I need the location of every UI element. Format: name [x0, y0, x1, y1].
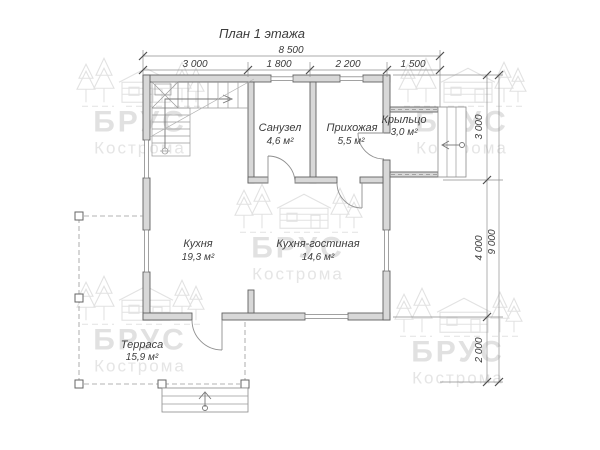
floor-plan-page: БРУС Кострома БРУС Кострома БРУС Костром… — [0, 0, 600, 450]
room-name-bathroom: Санузел — [259, 122, 302, 134]
room-area-kitchen-living: 14,6 м² — [302, 252, 335, 263]
room-name-hallway: Прихожая — [326, 122, 377, 134]
room-name-porch: Крыльцо — [381, 114, 426, 126]
dim-top-seg-3: 2 200 — [334, 59, 360, 70]
dim-right-seg-2: 4 000 — [474, 235, 485, 260]
dim-right-seg-3: 2 000 — [474, 337, 485, 363]
exterior-walls — [143, 75, 390, 320]
porch-steps — [438, 107, 466, 177]
room-area-bathroom: 4,6 м² — [267, 136, 295, 147]
plan-title: План 1 этажа — [219, 26, 305, 41]
room-labels: Санузел 4,6 м² Прихожая 5,5 м² Крыльцо 3… — [121, 114, 427, 363]
bathroom-door-swing — [268, 156, 295, 183]
room-area-terrace: 15,9 м² — [126, 352, 159, 363]
dim-right-total: 9 000 — [487, 229, 498, 254]
dim-top-seg-4: 1 500 — [400, 59, 425, 70]
room-name-kitchen-living: Кухня-гостиная — [276, 238, 359, 250]
dim-top-seg-1: 3 000 — [182, 59, 207, 70]
room-area-porch: 3,0 м² — [391, 127, 419, 138]
room-area-hallway: 5,5 м² — [338, 136, 366, 147]
interior-walls — [248, 82, 383, 313]
terrace-door-swing — [192, 320, 222, 350]
staircase — [150, 79, 254, 156]
terrace — [75, 212, 249, 412]
floor-plan-drawing: План 1 этажа — [0, 0, 600, 450]
living-room-door-swing — [337, 183, 362, 208]
room-name-terrace: Терраса — [121, 339, 163, 351]
dim-top-seg-2: 1 800 — [266, 59, 291, 70]
room-area-kitchen: 19,3 м² — [182, 252, 215, 263]
dim-top-total: 8 500 — [278, 45, 303, 56]
windows — [145, 77, 389, 319]
room-name-kitchen: Кухня — [183, 238, 212, 250]
dim-right-seg-1: 3 000 — [474, 114, 485, 139]
